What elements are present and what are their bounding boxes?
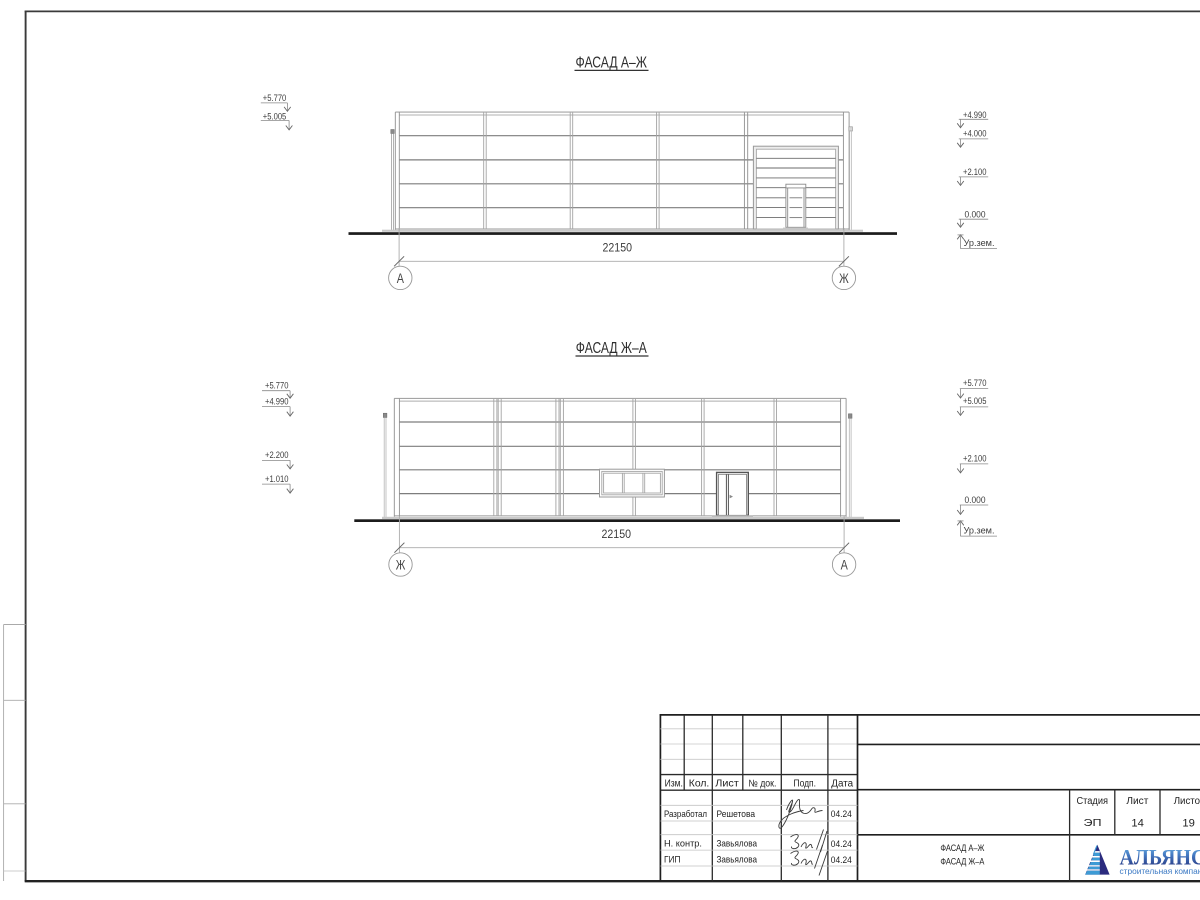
svg-text:ФАСАД А–Ж: ФАСАД А–Ж (576, 55, 648, 72)
svg-text:АЛЬЯНС: АЛЬЯНС (1120, 845, 1200, 870)
svg-text:+2.100: +2.100 (963, 167, 987, 178)
svg-text:А: А (397, 270, 405, 286)
svg-text:строительная компания: строительная компания (1120, 867, 1200, 876)
svg-text:0.000: 0.000 (965, 495, 986, 506)
svg-text:+5.005: +5.005 (963, 396, 987, 407)
svg-text:+2.100: +2.100 (963, 454, 987, 465)
svg-text:№ док.: № док. (748, 778, 776, 789)
svg-text:ФАСАД Ж–А: ФАСАД Ж–А (576, 340, 647, 357)
svg-text:Ур.зем.: Ур.зем. (964, 525, 995, 536)
svg-text:04.24: 04.24 (831, 839, 853, 850)
svg-text:+4.000: +4.000 (963, 129, 987, 140)
svg-text:Изм.: Изм. (665, 778, 683, 789)
svg-text:А: А (841, 557, 849, 573)
svg-text:22150: 22150 (602, 527, 632, 541)
svg-text:Лист: Лист (715, 778, 739, 789)
svg-text:+2.200: +2.200 (265, 450, 289, 461)
svg-text:Лист: Лист (1126, 796, 1149, 807)
svg-text:Ур.зем.: Ур.зем. (964, 238, 995, 249)
svg-text:Завьялова: Завьялова (717, 853, 758, 864)
svg-text:ФАСАД А–Ж: ФАСАД А–Ж (940, 842, 984, 853)
svg-text:Ж: Ж (839, 270, 849, 286)
svg-text:+1.010: +1.010 (265, 474, 289, 485)
svg-text:Листов: Листов (1174, 796, 1200, 807)
svg-text:+5.770: +5.770 (963, 378, 987, 389)
svg-text:Подп.: Подп. (794, 778, 817, 789)
svg-text:ЭП: ЭП (1084, 818, 1102, 829)
svg-text:ГИП: ГИП (664, 853, 681, 864)
svg-text:14: 14 (1131, 818, 1144, 830)
svg-text:19: 19 (1182, 818, 1195, 830)
svg-text:04.24: 04.24 (831, 855, 853, 866)
svg-text:Решетова: Решетова (717, 808, 756, 819)
svg-text:+4.990: +4.990 (265, 396, 289, 407)
svg-text:Ж: Ж (396, 557, 406, 573)
svg-text:0.000: 0.000 (965, 209, 986, 220)
svg-text:Разработал: Разработал (664, 808, 707, 819)
svg-text:Завьялова: Завьялова (717, 838, 758, 849)
svg-text:22150: 22150 (603, 241, 633, 255)
svg-text:ФАСАД Ж–А: ФАСАД Ж–А (940, 855, 985, 866)
svg-text:Стадия: Стадия (1077, 796, 1109, 807)
svg-text:Кол.: Кол. (689, 778, 710, 789)
svg-text:04.24: 04.24 (831, 809, 853, 820)
svg-text:+5.005: +5.005 (263, 112, 287, 123)
svg-text:Дата: Дата (831, 778, 853, 789)
svg-text:+5.770: +5.770 (265, 381, 289, 392)
svg-text:Н. контр.: Н. контр. (664, 838, 702, 849)
